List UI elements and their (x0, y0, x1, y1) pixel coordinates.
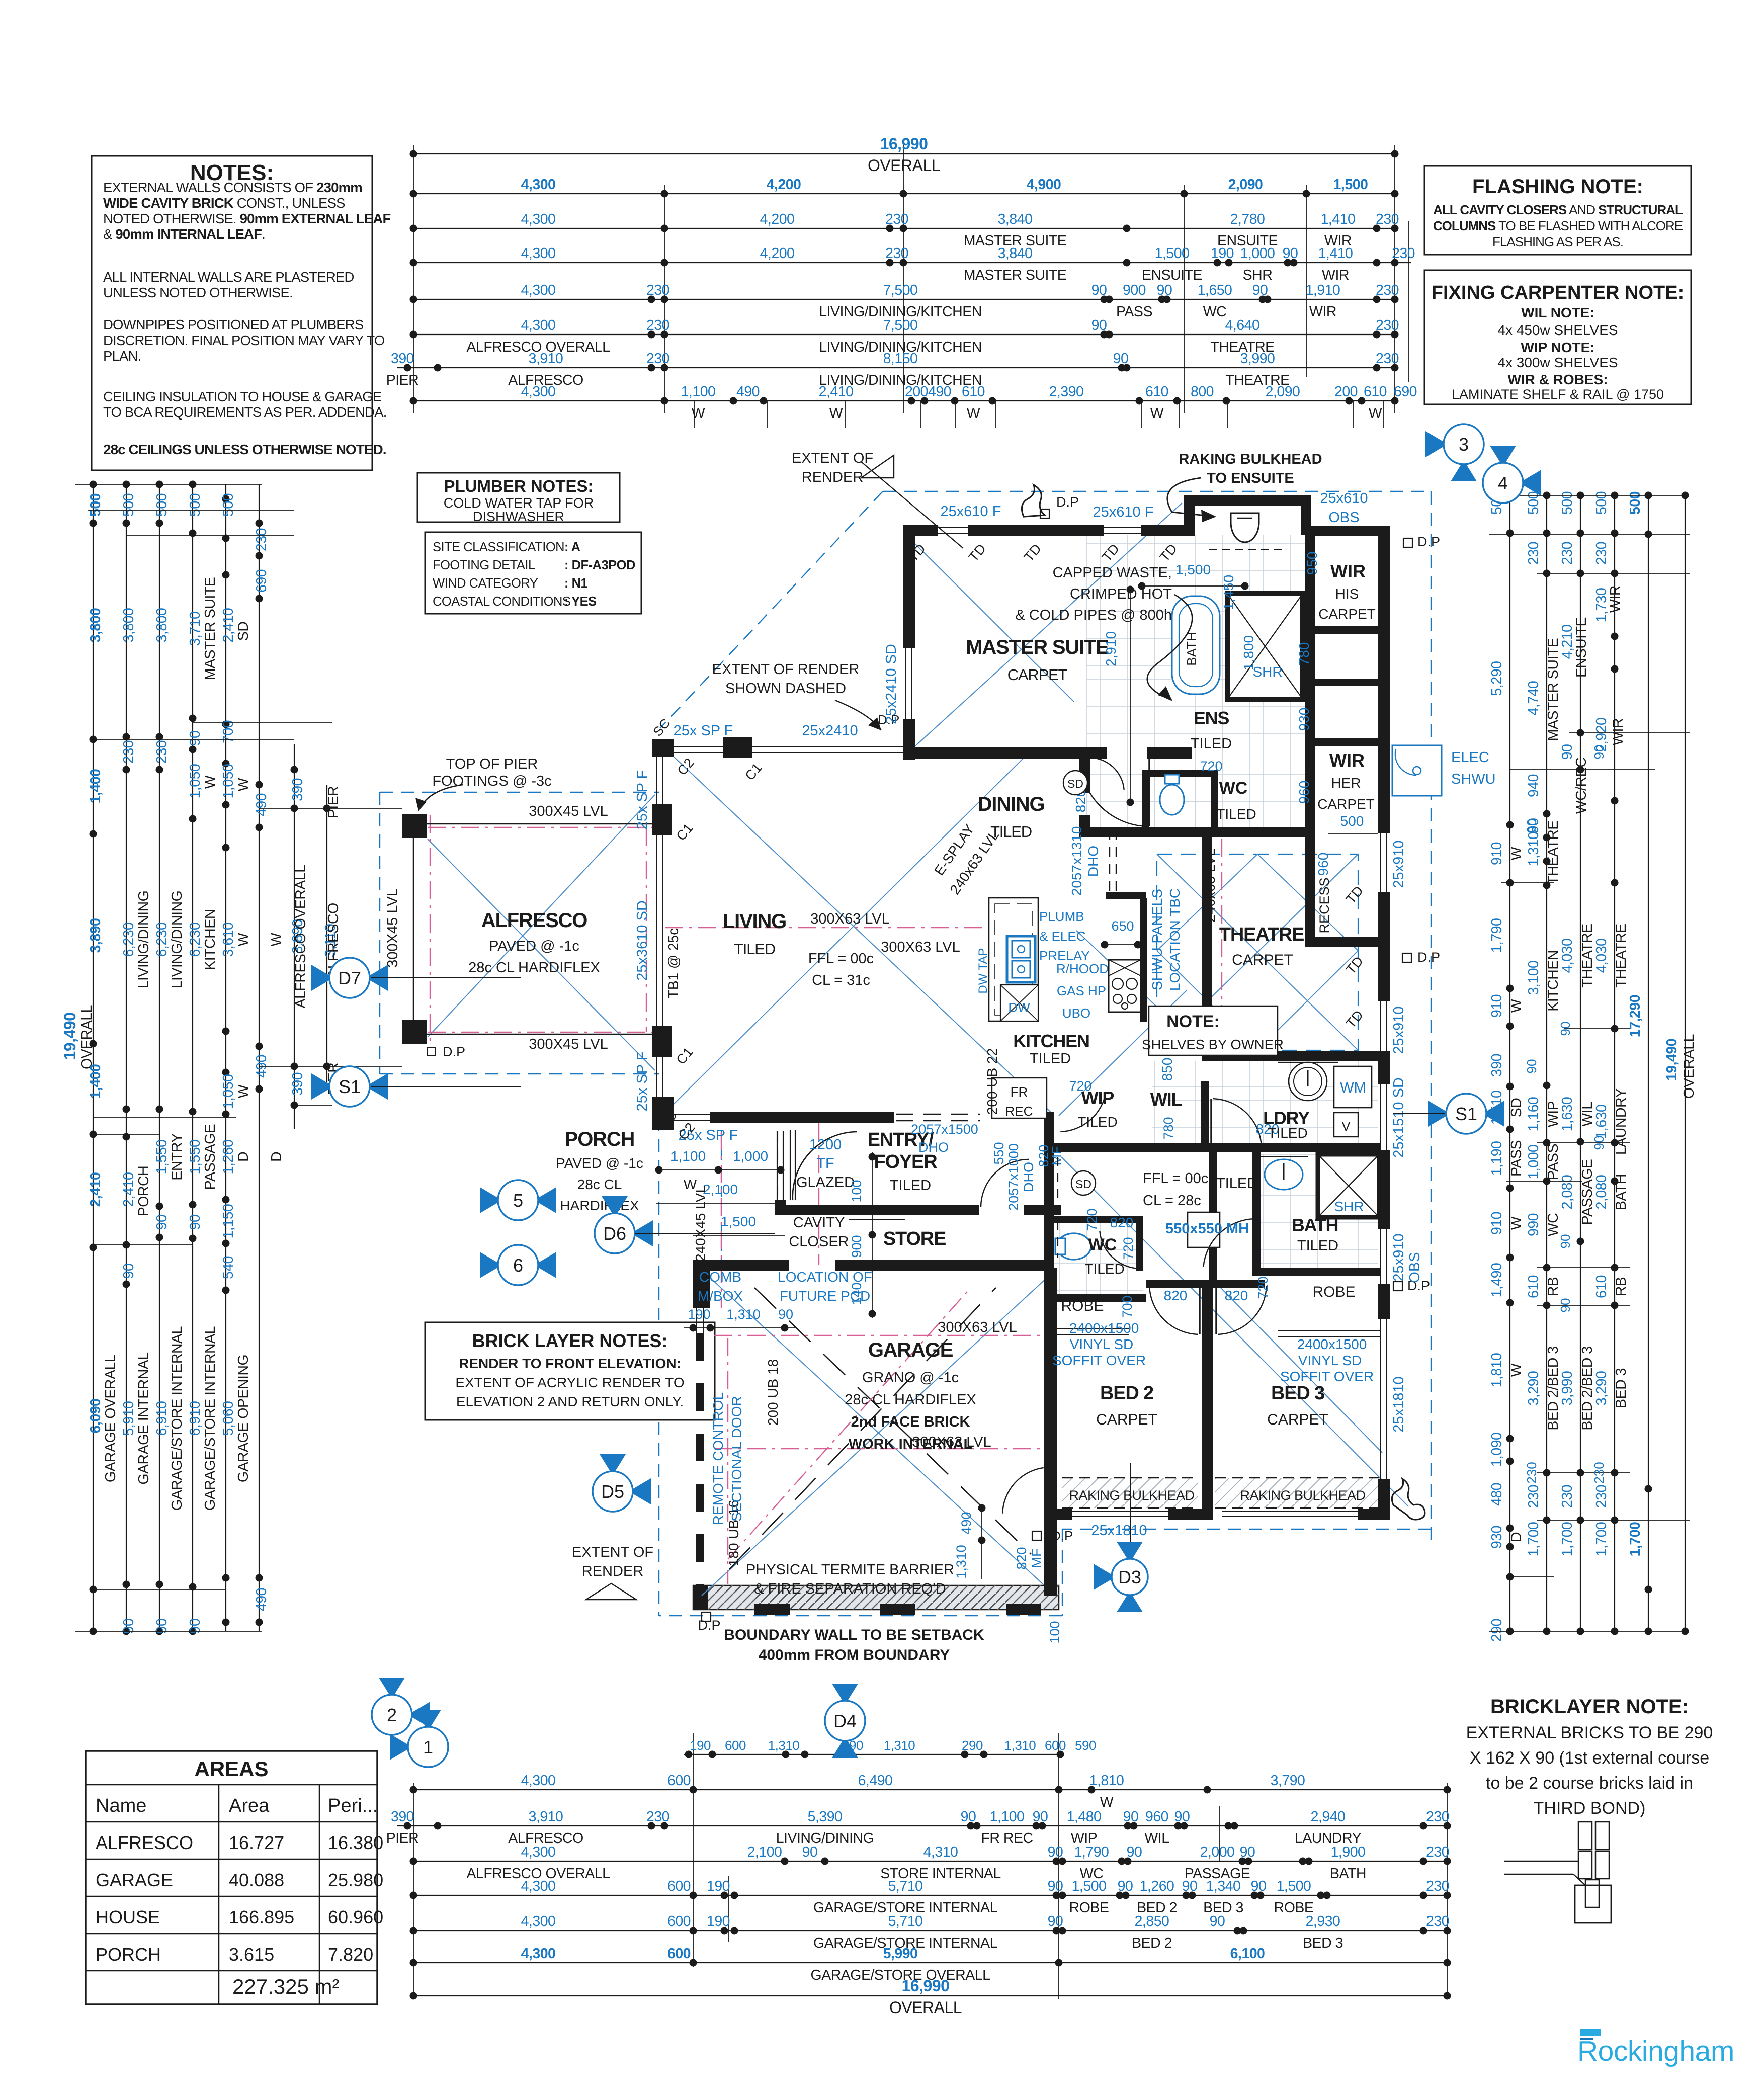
svg-text:BED 2: BED 2 (1100, 1383, 1153, 1404)
svg-text:1,000: 1,000 (733, 1148, 768, 1164)
svg-text:ELEC: ELEC (1451, 749, 1489, 766)
svg-text:D.P: D.P (1417, 534, 1440, 549)
svg-text:1,800: 1,800 (1241, 635, 1256, 671)
svg-text:6,490: 6,490 (858, 1773, 893, 1789)
svg-text:CARPET: CARPET (1267, 1411, 1328, 1428)
svg-text:90: 90 (1182, 1878, 1198, 1894)
svg-text:W: W (235, 778, 251, 791)
svg-text:4,300: 4,300 (521, 1946, 556, 1962)
svg-text:820: 820 (1110, 1215, 1134, 1230)
svg-text:PORCH: PORCH (136, 1166, 152, 1216)
svg-text:PAVED @ -1c: PAVED @ -1c (489, 938, 579, 954)
svg-text:690: 690 (254, 569, 270, 593)
svg-text:200: 200 (905, 384, 928, 400)
svg-text:1,700: 1,700 (1627, 1522, 1643, 1557)
svg-text:90: 90 (121, 1264, 137, 1279)
svg-text:230: 230 (1526, 542, 1542, 565)
svg-text:BED 2: BED 2 (1132, 1935, 1172, 1951)
svg-text:1,090: 1,090 (1489, 1433, 1505, 1467)
svg-text:550x550 MH: 550x550 MH (1165, 1221, 1249, 1237)
svg-text:COMB: COMB (699, 1269, 741, 1285)
svg-text:5,390: 5,390 (808, 1809, 843, 1825)
svg-text:4: 4 (1498, 473, 1508, 493)
svg-text:DW TAP: DW TAP (976, 948, 990, 993)
svg-text:25x1810: 25x1810 (1091, 1523, 1147, 1539)
svg-text:5,710: 5,710 (888, 1878, 923, 1894)
svg-text:WIR: WIR (1608, 585, 1624, 613)
svg-text:TO ENSUITE: TO ENSUITE (1207, 470, 1294, 486)
svg-text:VINYL SD: VINYL SD (1070, 1336, 1134, 1352)
svg-text:600: 600 (725, 1738, 746, 1753)
svg-text:300X63 LVL: 300X63 LVL (810, 911, 890, 927)
svg-text:3,910: 3,910 (529, 351, 563, 367)
svg-text:PORCH: PORCH (565, 1128, 634, 1150)
svg-text:CRIMPED HOT: CRIMPED HOT (1070, 586, 1172, 602)
svg-text:Area: Area (229, 1795, 270, 1816)
svg-text:90: 90 (1558, 1234, 1573, 1249)
svg-text:SD: SD (1067, 777, 1083, 790)
svg-text:D5: D5 (601, 1481, 624, 1502)
svg-text:820: 820 (1014, 1547, 1029, 1569)
svg-text:25x610 F: 25x610 F (941, 504, 1001, 520)
svg-text:PASS: PASS (1508, 1140, 1525, 1177)
svg-text:4,300: 4,300 (521, 245, 556, 262)
svg-text:500: 500 (220, 493, 236, 517)
svg-text:BATH: BATH (1292, 1215, 1338, 1235)
svg-text:TO BCA REQUIREMENTS AS PER. AD: TO BCA REQUIREMENTS AS PER. ADDENDA. (103, 404, 387, 420)
svg-text:1,340: 1,340 (1206, 1878, 1241, 1894)
svg-text:WIR: WIR (1330, 561, 1366, 581)
svg-text:1,000: 1,000 (1526, 1145, 1542, 1180)
svg-text:90: 90 (1174, 1809, 1190, 1825)
svg-text:600: 600 (667, 1773, 691, 1789)
svg-text:690: 690 (1394, 384, 1417, 400)
svg-text:230: 230 (646, 282, 669, 298)
svg-text:PLUMBER NOTES:: PLUMBER NOTES: (444, 477, 594, 495)
svg-text:90: 90 (778, 1307, 793, 1322)
svg-text:COASTAL CONDITIONS: COASTAL CONDITIONS (433, 595, 570, 609)
svg-text:490: 490 (254, 793, 270, 816)
svg-text:Name: Name (96, 1795, 146, 1816)
svg-text:230: 230 (1376, 317, 1399, 333)
svg-text:RENDER: RENDER (802, 469, 863, 485)
svg-text:4,640: 4,640 (1225, 317, 1260, 333)
svg-text:90: 90 (1118, 1878, 1133, 1894)
svg-text:& COLD PIPES @ 800h: & COLD PIPES @ 800h (1015, 607, 1172, 623)
svg-text:900: 900 (1123, 282, 1146, 298)
svg-text:1,160: 1,160 (1526, 1097, 1542, 1132)
svg-text:8,150: 8,150 (883, 351, 918, 367)
svg-text:1,650: 1,650 (1198, 282, 1232, 298)
svg-text:550: 550 (991, 1142, 1006, 1164)
svg-text:PIER: PIER (386, 1830, 419, 1847)
svg-text:230: 230 (1392, 245, 1415, 262)
svg-text:REC: REC (1005, 1104, 1033, 1119)
svg-text:650: 650 (1111, 918, 1134, 934)
svg-text:3,890: 3,890 (88, 918, 104, 953)
svg-text:FIXING CARPENTER NOTE:: FIXING CARPENTER NOTE: (1432, 282, 1684, 303)
svg-text:166.895: 166.895 (229, 1907, 294, 1928)
svg-text:7,500: 7,500 (883, 317, 918, 333)
svg-text:1,310: 1,310 (884, 1738, 915, 1753)
svg-text:28c CL HARDIFLEX: 28c CL HARDIFLEX (468, 960, 600, 976)
svg-text:720: 720 (1200, 759, 1222, 774)
svg-text:90: 90 (1283, 245, 1298, 262)
svg-text:PORCH: PORCH (96, 1944, 161, 1965)
svg-text:290: 290 (1489, 1619, 1505, 1642)
svg-text:BRICK LAYER NOTES:: BRICK LAYER NOTES: (472, 1330, 668, 1351)
svg-text:2: 2 (387, 1705, 397, 1725)
svg-text:GARAGE/STORE INTERNAL: GARAGE/STORE INTERNAL (169, 1326, 185, 1511)
svg-text:4,900: 4,900 (1027, 177, 1061, 193)
svg-text:RB: RB (1545, 1277, 1561, 1297)
svg-text:2,390: 2,390 (1049, 384, 1084, 400)
svg-text:Peri...: Peri... (328, 1795, 378, 1816)
svg-text:3,290: 3,290 (1526, 1371, 1542, 1406)
svg-text:910: 910 (1489, 842, 1505, 865)
svg-text:SHELVES BY OWNER: SHELVES BY OWNER (1142, 1037, 1284, 1052)
svg-text:ELEVATION 2 AND RETURN ONLY.: ELEVATION 2 AND RETURN ONLY. (456, 1394, 684, 1409)
svg-text:D: D (269, 1152, 285, 1162)
svg-text:1,410: 1,410 (1321, 211, 1356, 227)
svg-text:1,630: 1,630 (1559, 1097, 1575, 1132)
svg-text:4,300: 4,300 (521, 1878, 556, 1894)
svg-text:to be 2 course bricks laid in: to be 2 course bricks laid in (1486, 1774, 1693, 1793)
svg-text:REMOTE CONTROL: REMOTE CONTROL (710, 1392, 726, 1525)
svg-text:DW: DW (1008, 1000, 1030, 1015)
svg-text:& 90mm INTERNAL LEAF.: & 90mm INTERNAL LEAF. (103, 226, 265, 242)
svg-text:CEILING INSULATION TO HOUSE &: CEILING INSULATION TO HOUSE & GARAGE (103, 389, 382, 404)
svg-text:17,290: 17,290 (1627, 995, 1643, 1037)
svg-text:W: W (202, 775, 218, 789)
svg-text:W: W (235, 1084, 251, 1098)
svg-text:2,000: 2,000 (1200, 1844, 1235, 1860)
svg-text:290: 290 (962, 1738, 983, 1753)
svg-text:2,780: 2,780 (1230, 211, 1265, 227)
svg-text:1,500: 1,500 (1072, 1878, 1107, 1894)
svg-text:2,080: 2,080 (1559, 1175, 1575, 1210)
svg-text:ROBE: ROBE (1061, 1298, 1104, 1314)
svg-text:THEATRE: THEATRE (1579, 924, 1595, 987)
svg-text:850: 850 (1159, 1058, 1175, 1081)
svg-text:4,300: 4,300 (521, 177, 556, 193)
svg-text:LOCATION OF: LOCATION OF (778, 1269, 872, 1285)
svg-text:25x910: 25x910 (1391, 1006, 1407, 1054)
svg-text:25x2410: 25x2410 (802, 723, 858, 739)
svg-text:227.325 m²: 227.325 m² (232, 1975, 339, 1998)
svg-text:R/HOOD: R/HOOD (1056, 961, 1109, 976)
svg-text:SD: SD (1508, 1098, 1525, 1118)
svg-text:590: 590 (1075, 1738, 1096, 1753)
svg-text:TOP OF PIER: TOP OF PIER (446, 756, 538, 772)
svg-text:1,190: 1,190 (1489, 1141, 1505, 1176)
svg-text:3,800: 3,800 (88, 608, 104, 643)
svg-text:1,500: 1,500 (1175, 562, 1211, 577)
svg-text:3,100: 3,100 (1526, 961, 1542, 995)
svg-text:1,450: 1,450 (1221, 575, 1236, 610)
svg-text:OBS: OBS (1328, 510, 1359, 526)
svg-text:RENDER TO FRONT ELEVATION:: RENDER TO FRONT ELEVATION: (459, 1356, 681, 1371)
svg-text:1,910: 1,910 (1306, 282, 1340, 298)
svg-text:2,080: 2,080 (1593, 1175, 1610, 1210)
svg-text:2,940: 2,940 (1311, 1809, 1346, 1825)
svg-text:HIS: HIS (1335, 586, 1359, 602)
svg-text:820: 820 (1164, 1288, 1188, 1303)
svg-text:BATH: BATH (1184, 632, 1199, 665)
svg-text:230: 230 (1426, 1809, 1449, 1825)
svg-text:SD: SD (1075, 1178, 1091, 1191)
svg-text:ALL INTERNAL WALLS ARE PLASTER: ALL INTERNAL WALLS ARE PLASTERED (103, 269, 354, 285)
svg-text:230: 230 (1559, 1485, 1575, 1508)
svg-text:90: 90 (1048, 1844, 1063, 1860)
svg-text:W: W (1508, 1216, 1525, 1230)
svg-text:OVERALL: OVERALL (889, 1998, 962, 2017)
svg-text:2,850: 2,850 (1135, 1913, 1169, 1930)
svg-text:DHO: DHO (1085, 846, 1101, 877)
svg-text:3,840: 3,840 (998, 245, 1033, 262)
svg-text:WC: WC (1088, 1235, 1117, 1254)
svg-text:ALFRESCO: ALFRESCO (96, 1832, 193, 1853)
svg-text:SOFFIT OVER: SOFFIT OVER (1280, 1369, 1374, 1384)
svg-text:STORE: STORE (883, 1228, 946, 1249)
svg-text:CARPET: CARPET (1232, 952, 1293, 968)
svg-text:820: 820 (1225, 1288, 1248, 1303)
svg-text:1,500: 1,500 (1155, 245, 1190, 262)
svg-text:GARAGE OVERALL: GARAGE OVERALL (103, 1355, 119, 1482)
svg-text:90: 90 (1091, 282, 1107, 298)
svg-text:25x2410 SD: 25x2410 SD (883, 644, 899, 724)
svg-text:500: 500 (1593, 491, 1610, 515)
svg-text:OBS: OBS (1407, 1252, 1423, 1283)
svg-text:19,490: 19,490 (61, 1013, 79, 1060)
svg-text:910: 910 (1489, 994, 1505, 1018)
svg-text:WIP NOTE:: WIP NOTE: (1521, 340, 1594, 355)
svg-text:230: 230 (254, 528, 270, 551)
svg-text:BED 2/BED 3: BED 2/BED 3 (1579, 1346, 1595, 1430)
svg-text:390: 390 (391, 351, 414, 367)
svg-text:610: 610 (1145, 384, 1168, 400)
svg-text:90: 90 (802, 1844, 818, 1860)
svg-text:4x 450w SHELVES: 4x 450w SHELVES (1497, 322, 1618, 338)
svg-text:1,630: 1,630 (1593, 1105, 1610, 1139)
svg-text:TILED: TILED (1216, 1176, 1257, 1192)
svg-text:1,310: 1,310 (1526, 832, 1542, 867)
svg-text:S1: S1 (1455, 1104, 1477, 1124)
svg-text:PASS: PASS (1545, 1144, 1561, 1180)
svg-text:230: 230 (885, 245, 908, 262)
svg-text:WIL: WIL (1144, 1830, 1169, 1847)
svg-text:RAKING BULKHEAD: RAKING BULKHEAD (1069, 1488, 1194, 1503)
svg-text:1,150: 1,150 (220, 1204, 236, 1239)
svg-text:1,550: 1,550 (154, 1140, 170, 1175)
svg-text:25x610: 25x610 (1320, 490, 1368, 507)
svg-text:D.P: D.P (443, 1044, 465, 1059)
svg-text:SHOWN DASHED: SHOWN DASHED (725, 681, 846, 697)
svg-text:4,300: 4,300 (521, 1913, 556, 1930)
svg-text:NOTED OTHERWISE. 90mm EXTERNAL: NOTED OTHERWISE. 90mm EXTERNAL LEAF (103, 211, 391, 226)
svg-text:6,230: 6,230 (187, 923, 203, 957)
svg-text:2nd FACE BRICK: 2nd FACE BRICK (851, 1414, 970, 1430)
svg-text:1,810: 1,810 (1489, 1353, 1505, 1388)
svg-text:CARPET: CARPET (1096, 1411, 1157, 1428)
svg-text:WC/REC: WC/REC (1573, 758, 1589, 814)
svg-text:D.P: D.P (1056, 494, 1079, 510)
svg-text:780: 780 (1161, 1117, 1176, 1139)
svg-text:AREAS: AREAS (194, 1757, 268, 1781)
svg-text:4,200: 4,200 (760, 245, 795, 262)
svg-text:VINYL SD: VINYL SD (1298, 1353, 1362, 1368)
svg-text:4,300: 4,300 (521, 384, 556, 400)
svg-text:EXTENT OF ACRYLIC RENDER TO: EXTENT OF ACRYLIC RENDER TO (455, 1375, 684, 1390)
svg-text:4,310: 4,310 (923, 1844, 958, 1860)
svg-text:6,230: 6,230 (121, 923, 137, 957)
svg-text:MASTER SUITE: MASTER SUITE (966, 636, 1109, 658)
svg-text:GARAGE INTERNAL: GARAGE INTERNAL (136, 1352, 152, 1484)
svg-text:400mm FROM BOUNDARY: 400mm FROM BOUNDARY (759, 1647, 950, 1663)
svg-text:2,410: 2,410 (88, 1172, 104, 1207)
svg-text:2400x1500: 2400x1500 (1297, 1336, 1367, 1352)
svg-text:S1: S1 (339, 1076, 361, 1097)
svg-text:W: W (1100, 1794, 1114, 1810)
svg-text:230: 230 (1426, 1878, 1449, 1894)
svg-text:GLAZED: GLAZED (796, 1175, 855, 1191)
svg-text:SD: SD (235, 622, 251, 641)
svg-text:1,100: 1,100 (681, 384, 716, 400)
svg-text:1,550: 1,550 (187, 1140, 203, 1175)
svg-text:480: 480 (1489, 1483, 1505, 1506)
svg-text:TILED: TILED (1268, 1125, 1307, 1141)
svg-text:28c CL: 28c CL (577, 1177, 622, 1192)
svg-text:GRANO @ -1c: GRANO @ -1c (862, 1370, 959, 1386)
svg-text:500: 500 (88, 493, 104, 517)
svg-text:2057x1500: 2057x1500 (911, 1122, 978, 1137)
svg-text:EXTENT OF: EXTENT OF (792, 450, 873, 466)
svg-text:SHWU PANELS: SHWU PANELS (1149, 889, 1165, 990)
svg-text:25x610 F: 25x610 F (1093, 504, 1154, 520)
svg-text:1,480: 1,480 (1067, 1809, 1102, 1825)
svg-text:25x3610 SD: 25x3610 SD (634, 900, 650, 981)
svg-text:CL = 28c: CL = 28c (1143, 1193, 1201, 1209)
svg-text:1,500: 1,500 (721, 1214, 756, 1229)
svg-text:CARPET: CARPET (1007, 666, 1068, 684)
svg-text:4,300: 4,300 (521, 1773, 556, 1789)
svg-text:MF: MF (1029, 1549, 1044, 1568)
svg-text:CAVITY: CAVITY (793, 1215, 845, 1231)
svg-text:940: 940 (1526, 774, 1542, 797)
svg-text:300X45 LVL: 300X45 LVL (529, 1036, 608, 1052)
svg-text:300X63 LVL: 300X63 LVL (938, 1319, 1017, 1335)
svg-text:MASTER SUITE: MASTER SUITE (1545, 638, 1561, 741)
svg-text:5,710: 5,710 (888, 1913, 923, 1930)
svg-text:500: 500 (1559, 491, 1575, 515)
svg-text:WIDE CAVITY BRICK CONST., UNLE: WIDE CAVITY BRICK CONST., UNLESS (103, 195, 345, 211)
svg-text:LAUNDRY: LAUNDRY (1613, 1088, 1629, 1155)
svg-text:90: 90 (961, 1809, 976, 1825)
svg-text:: N1: : N1 (564, 576, 587, 591)
svg-text:6,230: 6,230 (154, 923, 170, 957)
svg-text:930: 930 (1296, 708, 1312, 731)
svg-text:230: 230 (1524, 1462, 1539, 1483)
svg-text:720: 720 (1121, 1237, 1136, 1260)
svg-text:OVERALL: OVERALL (868, 156, 940, 175)
svg-text:RAKING BULKHEAD: RAKING BULKHEAD (1240, 1488, 1365, 1503)
svg-text:TILED: TILED (890, 1178, 931, 1194)
svg-text:ALL CAVITY CLOSERS AND STRUCTU: ALL CAVITY CLOSERS AND STRUCTURAL (1433, 202, 1683, 217)
svg-text:SHR: SHR (1243, 267, 1273, 283)
svg-text:230: 230 (1593, 1485, 1610, 1508)
svg-text:GARAGE OPENING: GARAGE OPENING (235, 1355, 251, 1482)
svg-text:WC: WC (1203, 304, 1226, 320)
svg-text:1,400: 1,400 (88, 769, 104, 804)
svg-text:PLUMB: PLUMB (1039, 909, 1084, 924)
svg-text:MASTER SUITE: MASTER SUITE (964, 267, 1067, 283)
svg-text:90: 90 (1240, 1844, 1255, 1860)
svg-text:: A: : A (564, 540, 580, 554)
svg-text:1,050: 1,050 (220, 1074, 236, 1109)
svg-text:3,910: 3,910 (529, 1809, 563, 1825)
svg-text:TILED: TILED (734, 940, 775, 958)
svg-text:240X45 LVL: 240X45 LVL (693, 1185, 708, 1262)
svg-text:UNLESS NOTED OTHERWISE.: UNLESS NOTED OTHERWISE. (103, 285, 293, 300)
svg-text:500: 500 (154, 493, 170, 517)
svg-text:780: 780 (1296, 642, 1312, 666)
svg-text:GARAGE/STORE OVERALL: GARAGE/STORE OVERALL (811, 1967, 990, 1983)
svg-text:WIR: WIR (1322, 267, 1349, 283)
svg-text:LAMINATE SHELF & RAIL @ 1750: LAMINATE SHELF & RAIL @ 1750 (1452, 387, 1664, 402)
svg-text:4,030: 4,030 (1593, 939, 1610, 973)
svg-text:2,410: 2,410 (121, 1172, 137, 1207)
svg-text:PAVED @ -1c: PAVED @ -1c (556, 1155, 643, 1171)
svg-text:W: W (692, 405, 705, 422)
svg-text:960: 960 (1315, 853, 1331, 876)
svg-text:W: W (1508, 999, 1525, 1013)
svg-text:1200: 1200 (809, 1137, 842, 1153)
svg-text:2,910: 2,910 (1103, 631, 1119, 666)
svg-text:5,290: 5,290 (1489, 661, 1505, 696)
svg-text:190: 190 (688, 1307, 710, 1322)
svg-text:25x910: 25x910 (1391, 1233, 1407, 1281)
svg-text:490: 490 (254, 1588, 270, 1611)
svg-text:500: 500 (1526, 491, 1542, 515)
svg-text:4x 300w SHELVES: 4x 300w SHELVES (1497, 355, 1618, 370)
svg-text:960: 960 (1296, 781, 1312, 804)
svg-text:1,500: 1,500 (1277, 1878, 1311, 1894)
svg-text:LIVING/DINING: LIVING/DINING (169, 891, 185, 989)
svg-text:7,500: 7,500 (883, 282, 918, 298)
svg-text:BATH: BATH (1330, 1866, 1366, 1882)
svg-text:RECESS: RECESS (1317, 877, 1332, 933)
svg-text:910: 910 (1489, 1212, 1505, 1235)
svg-text:90: 90 (1048, 1913, 1063, 1930)
svg-text:900: 900 (849, 1235, 864, 1258)
svg-text:ENS: ENS (1194, 708, 1229, 728)
svg-text:WIP: WIP (1081, 1087, 1114, 1108)
svg-text:D: D (1508, 1532, 1525, 1542)
svg-text:HOUSE: HOUSE (96, 1907, 160, 1928)
svg-text:THEATRE: THEATRE (1545, 820, 1561, 884)
svg-text:WIL: WIL (1579, 1102, 1595, 1126)
svg-text:700: 700 (1120, 1295, 1135, 1318)
svg-text:200: 200 (1334, 384, 1358, 400)
svg-text:PASSAGE: PASSAGE (202, 1124, 218, 1190)
svg-text:DISHWASHER: DISHWASHER (473, 509, 564, 524)
svg-text:610: 610 (1526, 1275, 1542, 1298)
svg-text:PIER: PIER (325, 786, 342, 819)
svg-text:5,910: 5,910 (121, 1401, 137, 1436)
svg-text:ROBE: ROBE (1069, 1900, 1109, 1916)
svg-text:490: 490 (959, 1512, 974, 1534)
svg-text:490: 490 (736, 384, 760, 400)
